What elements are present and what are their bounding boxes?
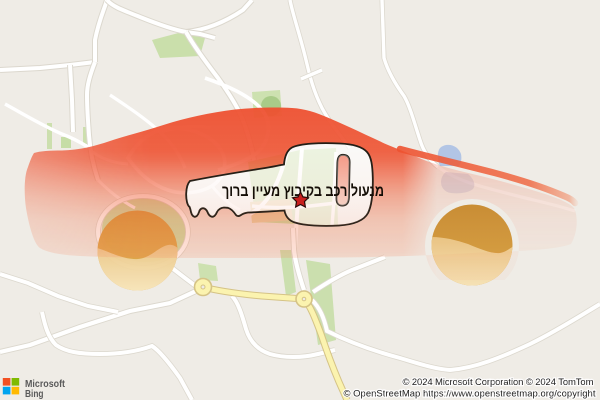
svg-text:© 2024 Microsoft Corporation ©: © 2024 Microsoft Corporation © 2024 TomT… <box>403 377 594 388</box>
svg-text:© OpenStreetMap https://www.op: © OpenStreetMap https://www.openstreetma… <box>344 388 596 399</box>
svg-text:Bing: Bing <box>25 389 44 400</box>
